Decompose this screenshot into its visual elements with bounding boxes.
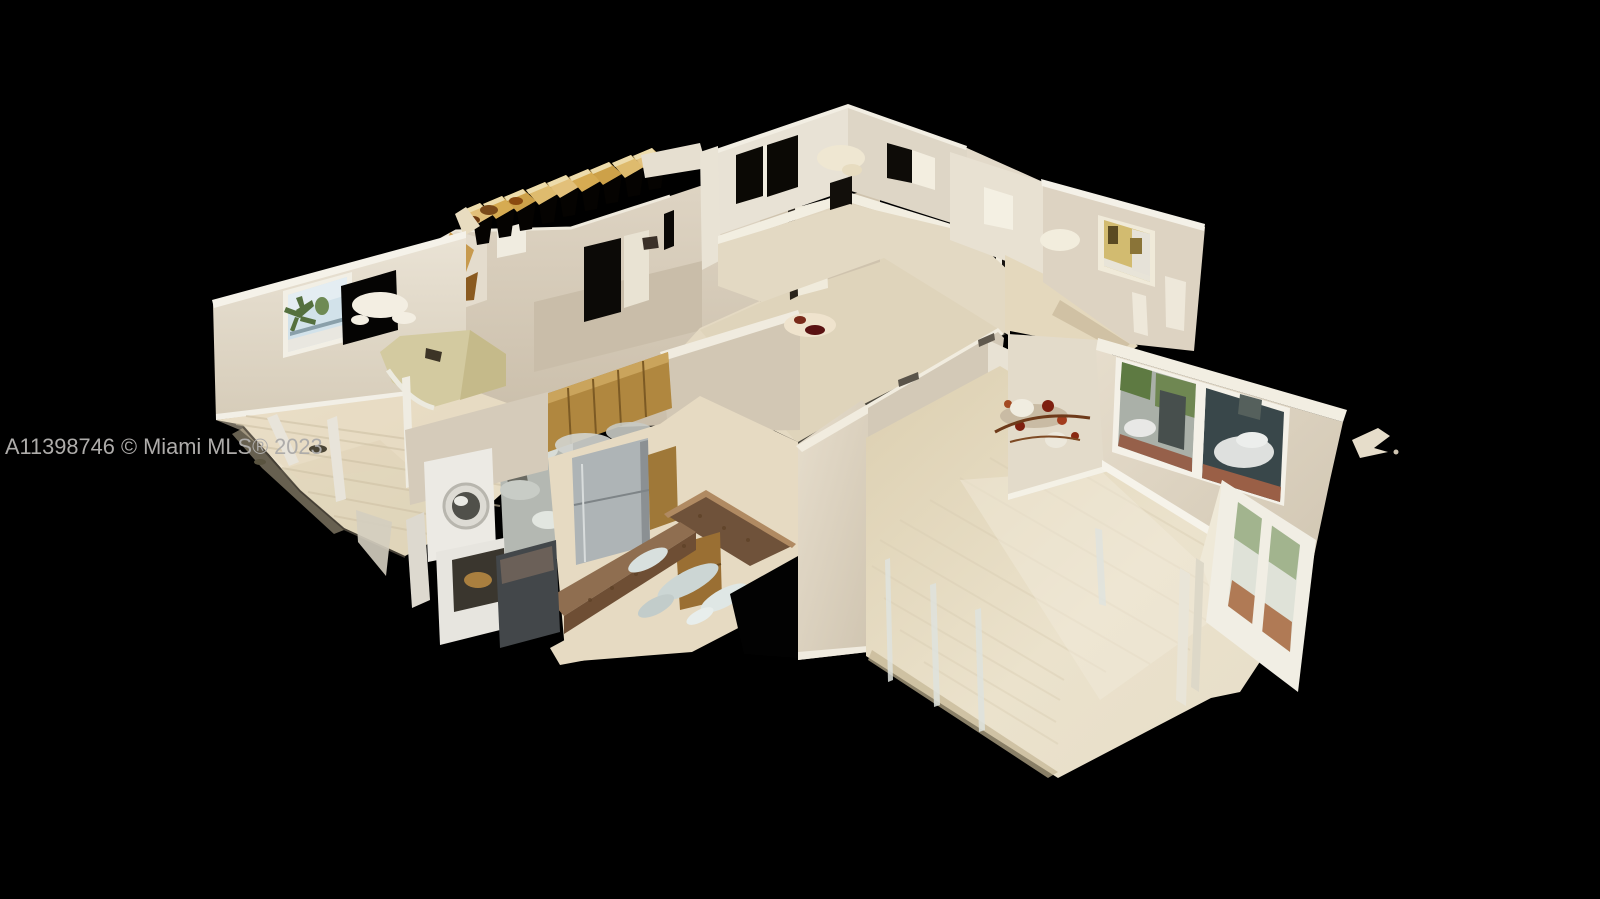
svg-text:A11398746 © Miami MLS® 2023: A11398746 © Miami MLS® 2023	[5, 434, 323, 459]
